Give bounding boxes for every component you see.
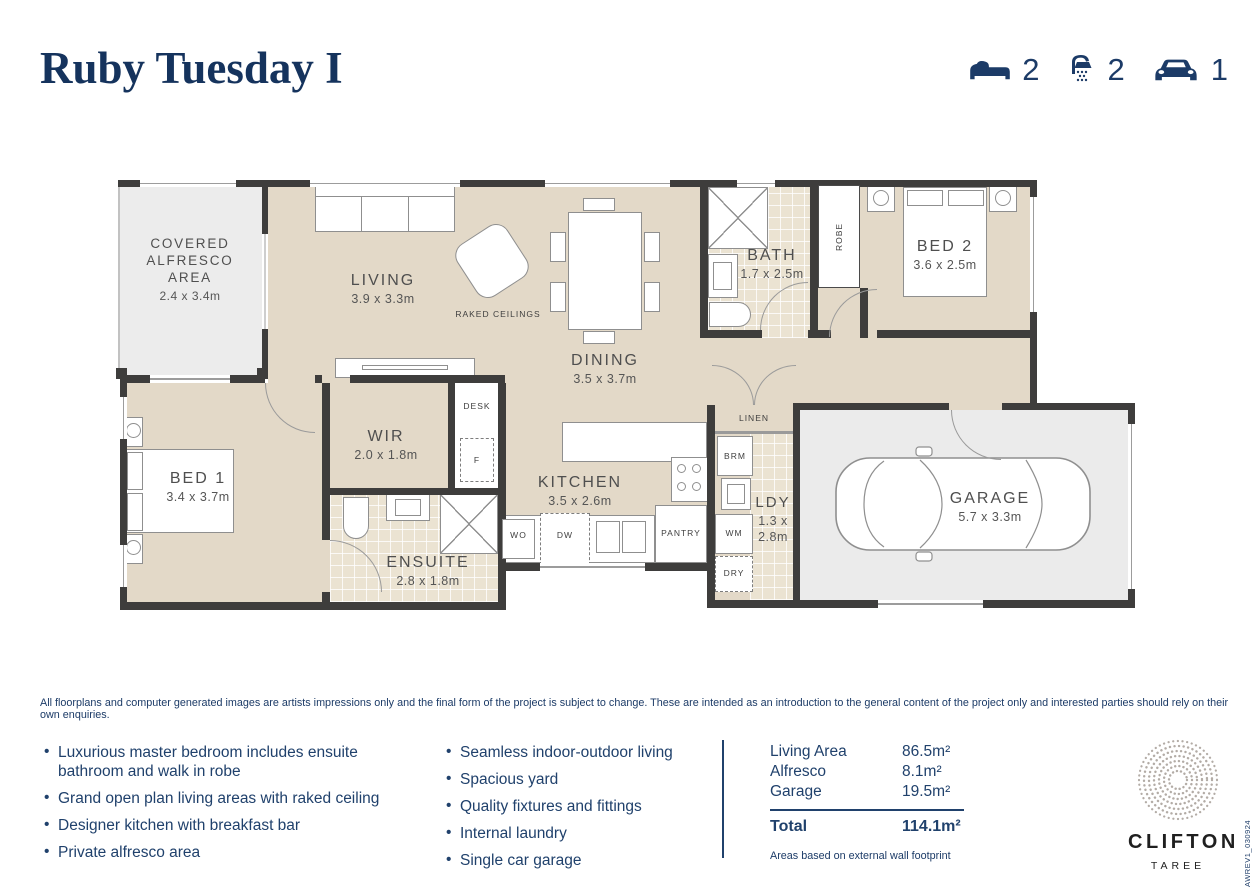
feature-item: Grand open plan living areas with raked …: [42, 790, 412, 809]
shower-icon: [1066, 50, 1098, 90]
desk-label: DESK: [456, 400, 498, 412]
clifton-logo-icon: [1136, 809, 1220, 826]
document-code: AWREV1_030924: [1243, 815, 1252, 887]
areas-rule: [770, 809, 964, 811]
room-label-garage: GARAGE 5.7 x 3.3m: [950, 490, 1030, 524]
room-label-ensuite: ENSUITE 2.8 x 1.8m: [386, 554, 469, 588]
area-row-living: Living Area86.5m²: [770, 742, 964, 762]
stat-bedrooms-value: 2: [1022, 52, 1039, 88]
feature-item: Single car garage: [444, 852, 719, 871]
room-label-dining: DINING 3.5 x 3.7m: [571, 352, 639, 386]
room-label-wir: WIR 2.0 x 1.8m: [354, 428, 417, 462]
area-total-row: Total114.1m²: [770, 817, 964, 837]
features-column-2: Seamless indoor-outdoor living Spacious …: [444, 744, 719, 879]
logo-location: TAREE: [1128, 860, 1228, 872]
feature-item: Spacious yard: [444, 771, 719, 790]
stat-cars: 1: [1151, 52, 1228, 88]
area-row-garage: Garage19.5m²: [770, 782, 964, 802]
stats-row: 2 2 1: [968, 50, 1228, 90]
feature-item: Luxurious master bedroom includes ensuit…: [42, 744, 412, 782]
feature-item: Private alfresco area: [42, 844, 412, 863]
bath-shower: [708, 187, 768, 249]
feature-item: Quality fixtures and fittings: [444, 798, 719, 817]
disclaimer-text: All floorplans and computer generated im…: [40, 697, 1230, 721]
fridge-label: F: [474, 455, 480, 465]
dining-table: [568, 212, 642, 330]
sofa: [315, 186, 455, 232]
robe-label: ROBE: [822, 207, 856, 267]
dryer-label: DRY: [715, 567, 753, 579]
logo-brand: CLIFTON: [1128, 831, 1228, 854]
broom-label: BRM: [717, 450, 753, 462]
stat-bedrooms: 2: [968, 52, 1039, 88]
fridge-space: F: [460, 438, 494, 482]
stat-bathrooms: 2: [1066, 50, 1125, 90]
raked-ceilings-note: RAKED CEILINGS: [450, 308, 546, 320]
feature-item: Internal laundry: [444, 825, 719, 844]
room-label-bed1: BED 1 3.4 x 3.7m: [166, 470, 229, 504]
features-column-1: Luxurious master bedroom includes ensuit…: [42, 744, 412, 871]
floor-plan: F COVERED ALFRESCO AREA 2.4 x 3.4m: [110, 172, 1150, 620]
room-label-kitchen: KITCHEN 3.5 x 2.6m: [538, 474, 622, 508]
ensuite-shower: [440, 494, 498, 554]
dishwasher-label: DW: [540, 529, 590, 541]
feature-item: Seamless indoor-outdoor living: [444, 744, 719, 763]
room-label-bath: BATH 1.7 x 2.5m: [740, 247, 803, 281]
areas-table: Living Area86.5m² Alfresco8.1m² Garage19…: [770, 742, 964, 862]
car-icon: [1151, 56, 1201, 85]
wall-oven-label: WO: [502, 529, 535, 541]
stat-bathrooms-value: 2: [1108, 52, 1125, 88]
room-label-ldy: LDY 1.3 x 2.8m: [749, 494, 797, 546]
stat-cars-value: 1: [1211, 52, 1228, 88]
features-divider: [722, 740, 724, 858]
cooktop: [671, 457, 708, 502]
page-title: Ruby Tuesday I: [40, 42, 343, 94]
areas-note: Areas based on external wall footprint: [770, 850, 964, 862]
bath-toilet: [709, 302, 751, 327]
brochure-page: Ruby Tuesday I 2 2: [0, 0, 1260, 890]
linen-label: LINEN: [715, 412, 793, 424]
room-label-bed2: BED 2 3.6 x 2.5m: [913, 238, 976, 272]
room-label-living: LIVING 3.9 x 3.3m: [351, 272, 415, 306]
ensuite-toilet: [343, 497, 369, 539]
room-label-alfresco: COVERED ALFRESCO AREA 2.4 x 3.4m: [125, 236, 255, 303]
feature-item: Designer kitchen with breakfast bar: [42, 817, 412, 836]
clifton-logo: CLIFTON TAREE: [1128, 738, 1228, 872]
bed-icon: [968, 55, 1012, 86]
area-row-alfresco: Alfresco8.1m²: [770, 762, 964, 782]
pantry-label: PANTRY: [655, 527, 707, 539]
kitchen-island: [562, 422, 707, 462]
washer-label: WM: [715, 527, 753, 539]
